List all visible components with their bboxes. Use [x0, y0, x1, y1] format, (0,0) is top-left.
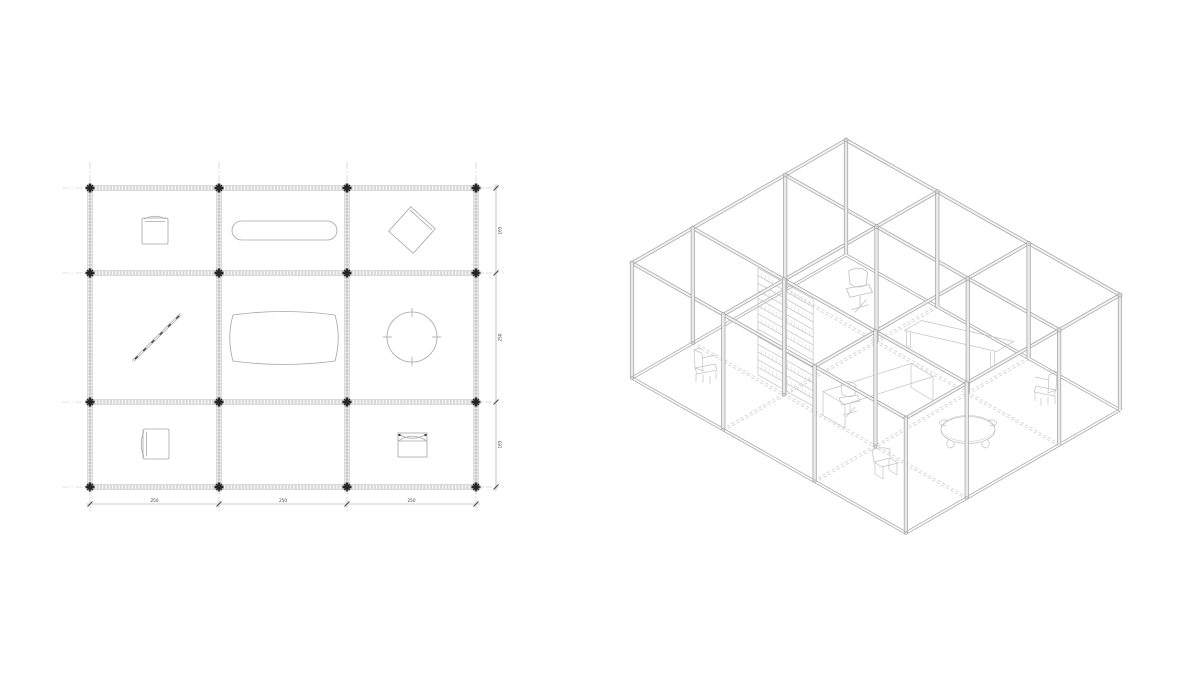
dimension-line-right: 165250165: [479, 184, 504, 491]
dim-label-bottom-2: 250: [408, 498, 416, 503]
dim-label-right-1: 250: [498, 333, 503, 341]
dimension-line-bottom: 250250250: [86, 490, 480, 512]
dim-label-bottom-1: 250: [279, 498, 287, 503]
floor-plan: 250250250165250165: [62, 162, 504, 513]
plan-furniture-armchair-bottom-left: [141, 429, 169, 459]
iso-armchair-right: [1034, 370, 1057, 406]
plan-furniture-armchair-rotated-top-right: [389, 207, 436, 254]
plan-furniture-armchair-top-left: [142, 216, 168, 244]
plan-columns: [86, 184, 481, 492]
iso-office-chair: [846, 268, 872, 312]
iso-small-chair-front: [872, 448, 898, 479]
iso-base-joints: [630, 341, 968, 534]
architectural-drawing: 250250250165250165: [0, 0, 1200, 675]
dim-label-right-0: 165: [498, 226, 503, 234]
grid-centerlines: [62, 162, 492, 513]
iso-columns-front: [630, 228, 968, 533]
plan-furniture-round-table-middle-right: [383, 308, 441, 366]
plan-furniture-table-center: [230, 312, 339, 365]
drawing-sheet: 250250250165250165: [0, 0, 1200, 675]
isometric-view: [630, 138, 1122, 535]
dim-label-bottom-0: 250: [151, 498, 159, 503]
iso-meeting-table: [823, 364, 933, 429]
dim-label-right-2: 165: [498, 440, 503, 448]
plan-furniture-ladder-middle-left: [132, 313, 181, 361]
plan-furniture-stool-bottom-right: [398, 433, 427, 457]
iso-columns-back: [783, 140, 1121, 445]
iso-long-table: [905, 321, 1014, 368]
plan-furniture-shelf-top-middle: [232, 221, 337, 240]
